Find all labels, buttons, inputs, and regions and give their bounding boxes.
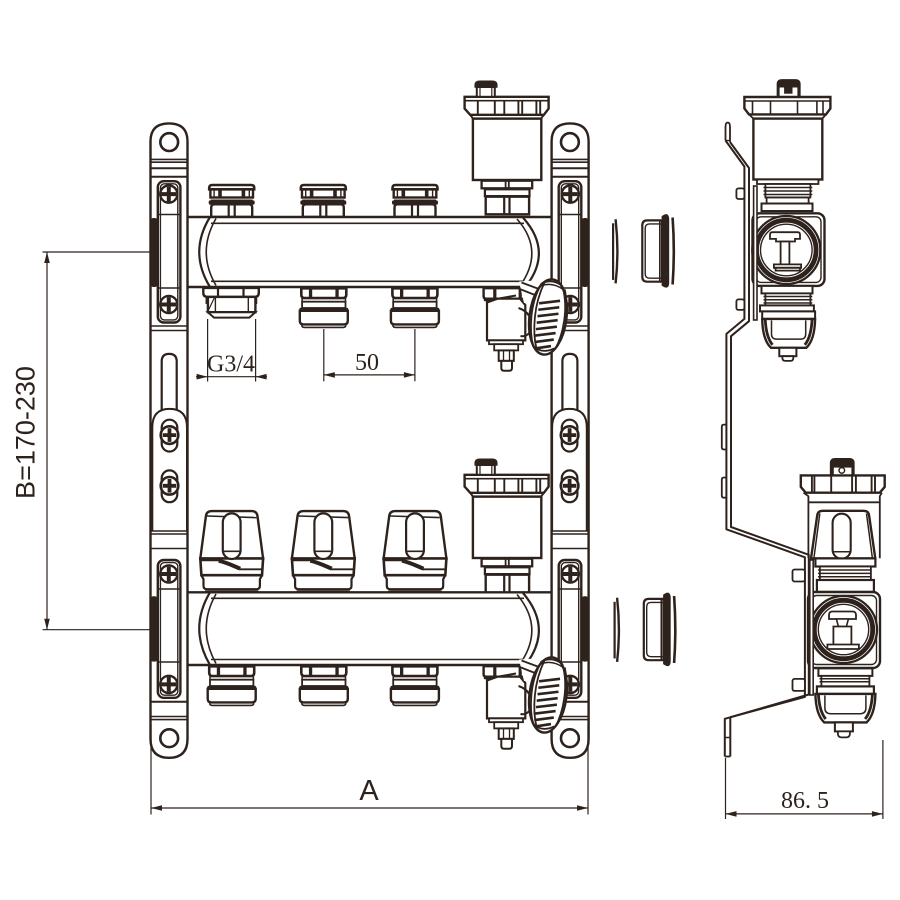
svg-text:B=170-230: B=170-230	[11, 366, 41, 499]
svg-text:A: A	[359, 775, 379, 807]
svg-text:86. 5: 86. 5	[781, 788, 829, 814]
svg-text:G3/4: G3/4	[207, 352, 255, 378]
svg-text:50: 50	[355, 350, 379, 376]
